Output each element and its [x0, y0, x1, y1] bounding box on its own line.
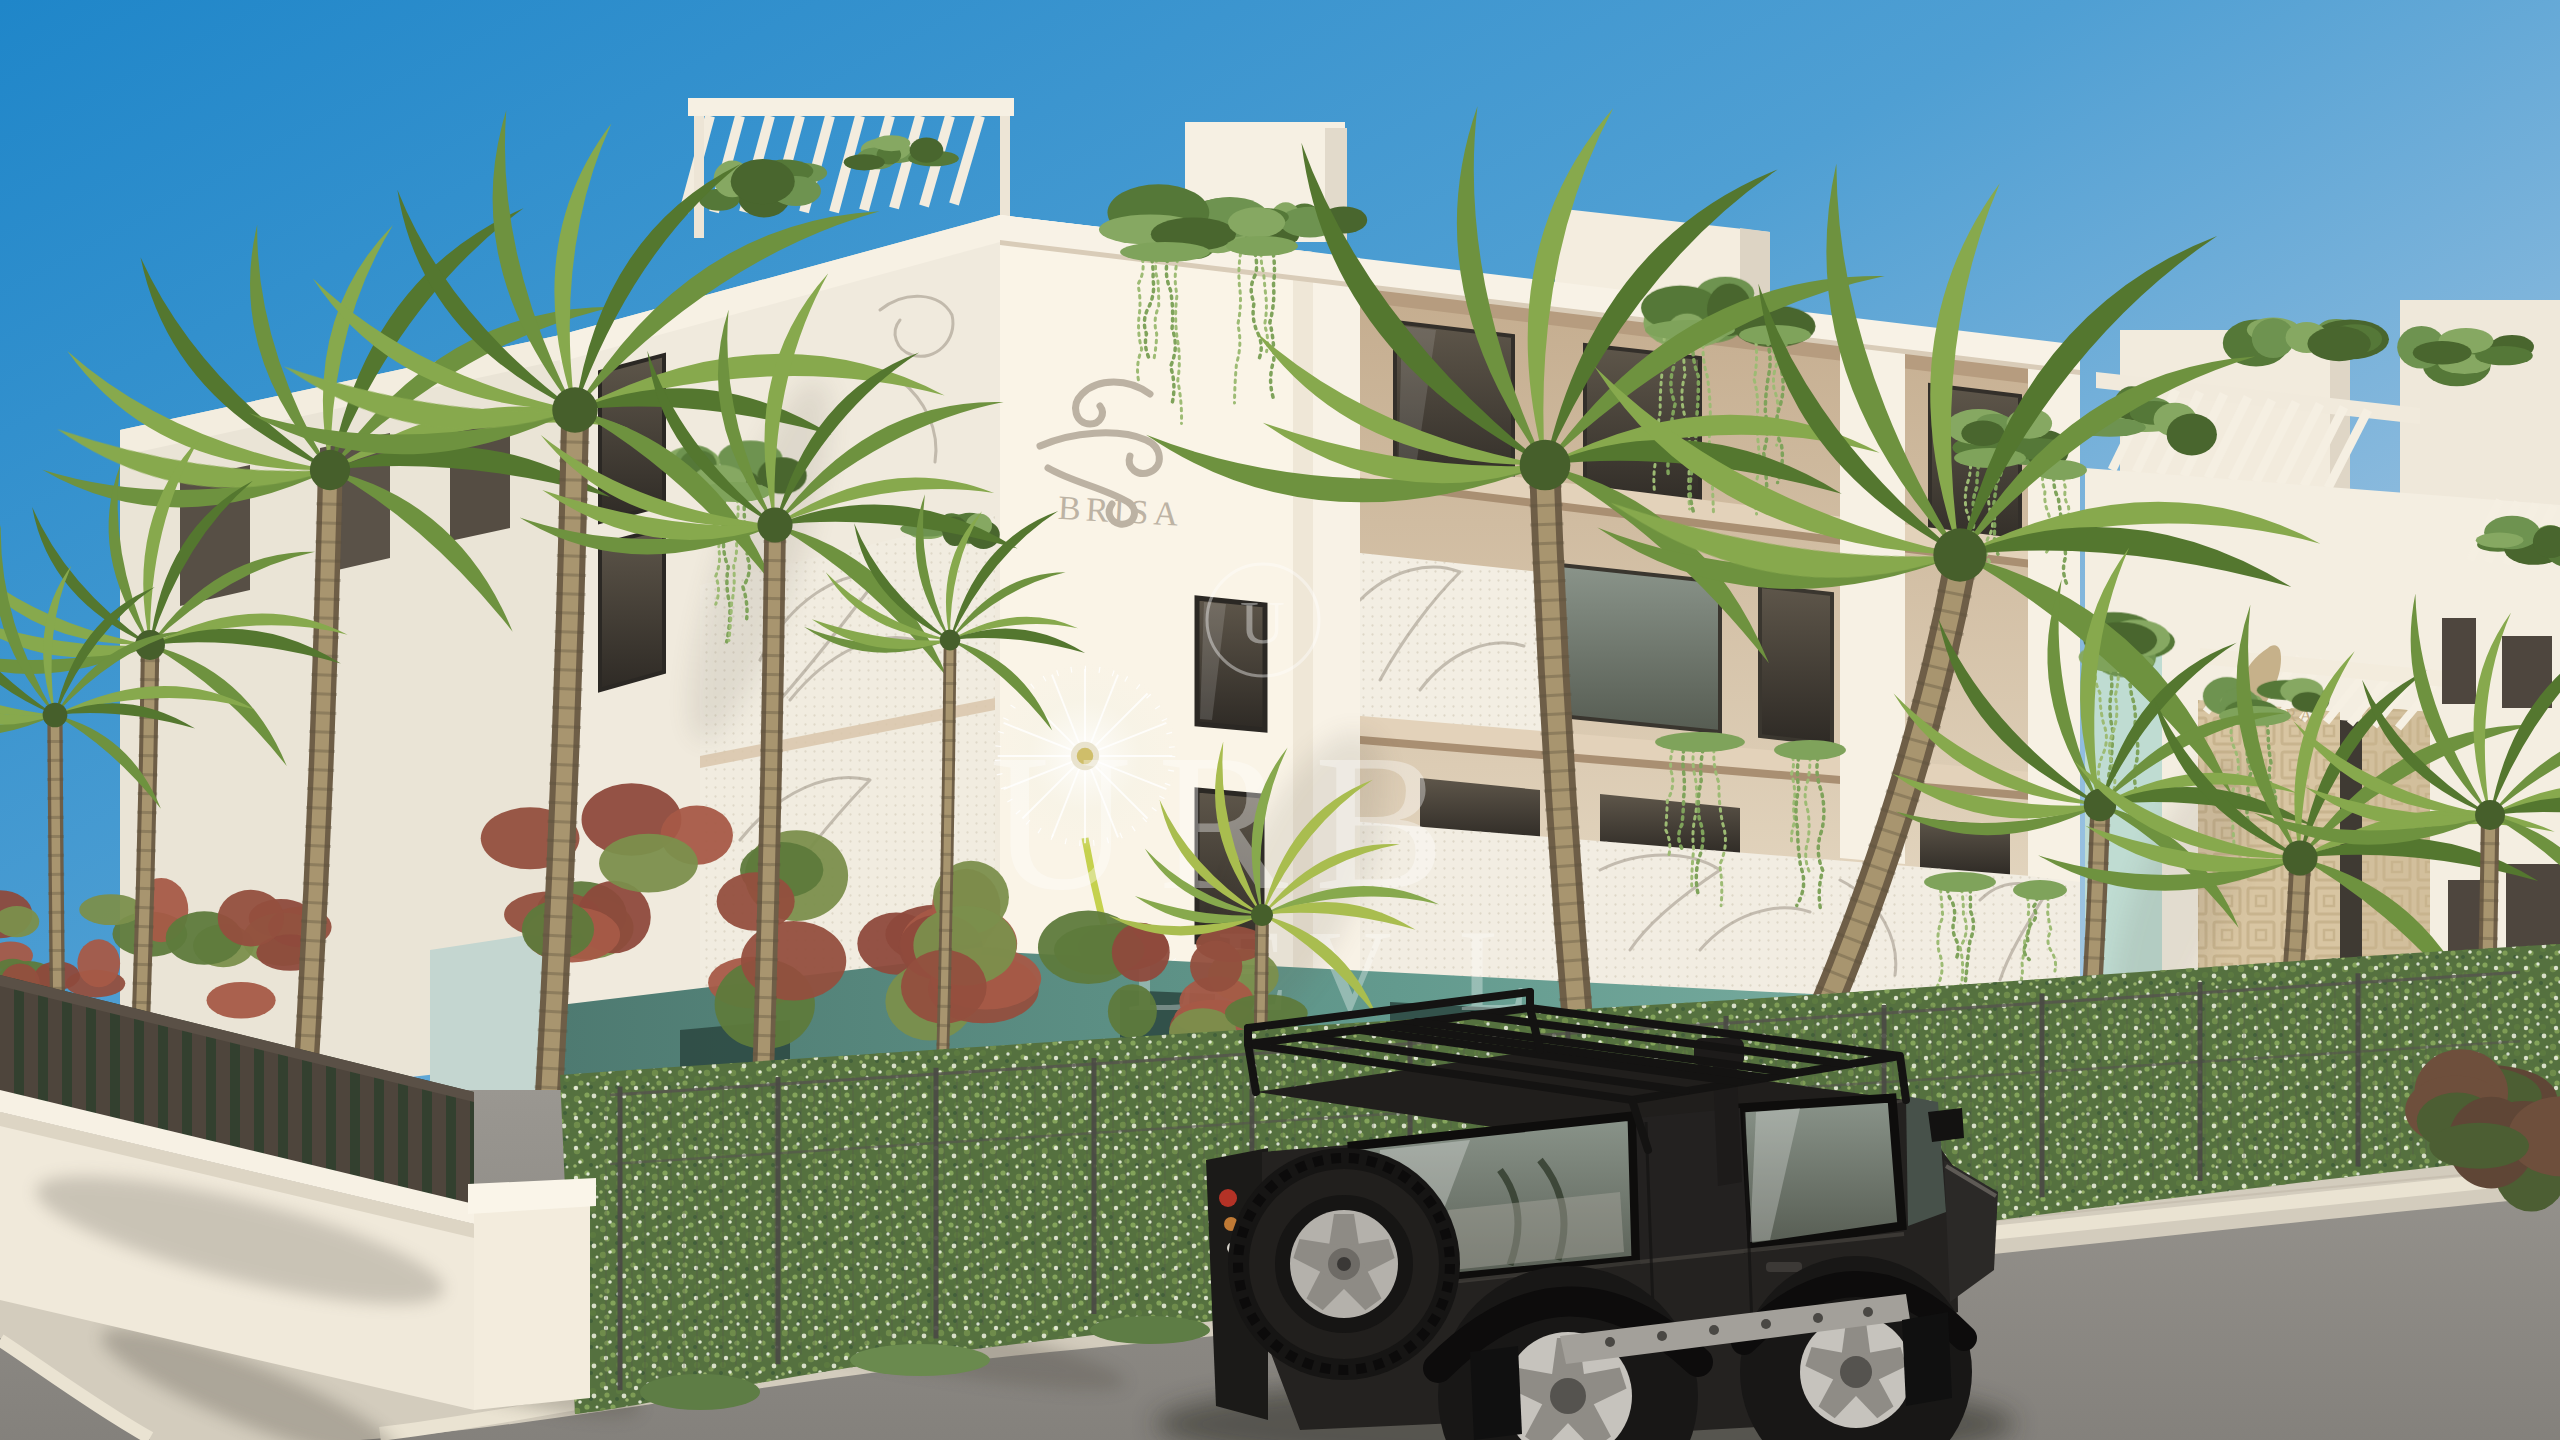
car-spare-tire [1228, 1148, 1460, 1380]
render-viewport: BRISA [0, 0, 2560, 1440]
scene-canvas: BRISA [0, 0, 2560, 1440]
wall-post [474, 1190, 590, 1410]
watermark-monogram: U [1240, 588, 1285, 656]
brisa-label: BRISA [1057, 489, 1184, 533]
